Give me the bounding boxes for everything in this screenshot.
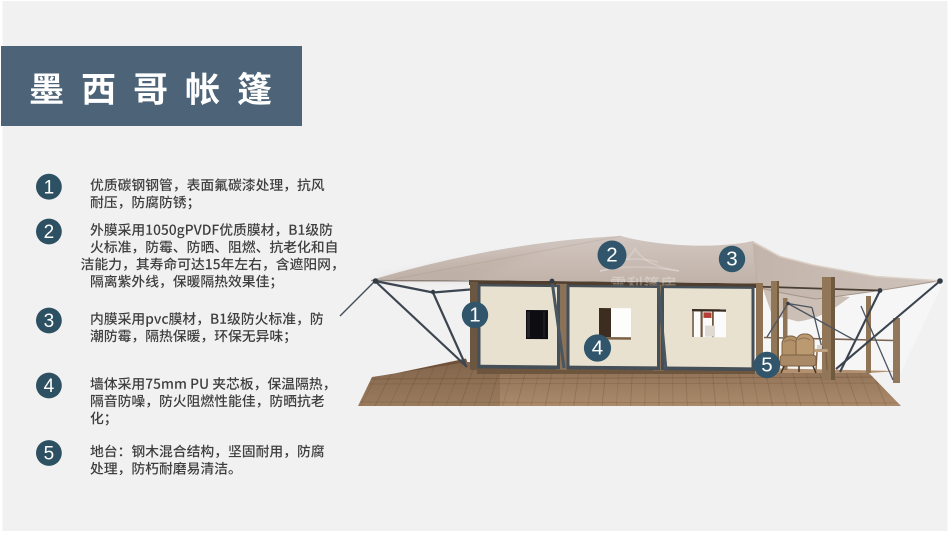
- svg-text:4: 4: [592, 337, 603, 360]
- svg-text:5: 5: [44, 444, 55, 465]
- svg-text:4: 4: [44, 376, 55, 397]
- svg-text:1: 1: [469, 304, 480, 327]
- svg-text:5: 5: [761, 354, 772, 377]
- svg-text:3: 3: [726, 248, 737, 271]
- svg-text:2: 2: [606, 244, 617, 267]
- svg-text:3: 3: [44, 311, 55, 332]
- svg-text:1: 1: [44, 177, 55, 198]
- svg-text:2: 2: [44, 222, 55, 243]
